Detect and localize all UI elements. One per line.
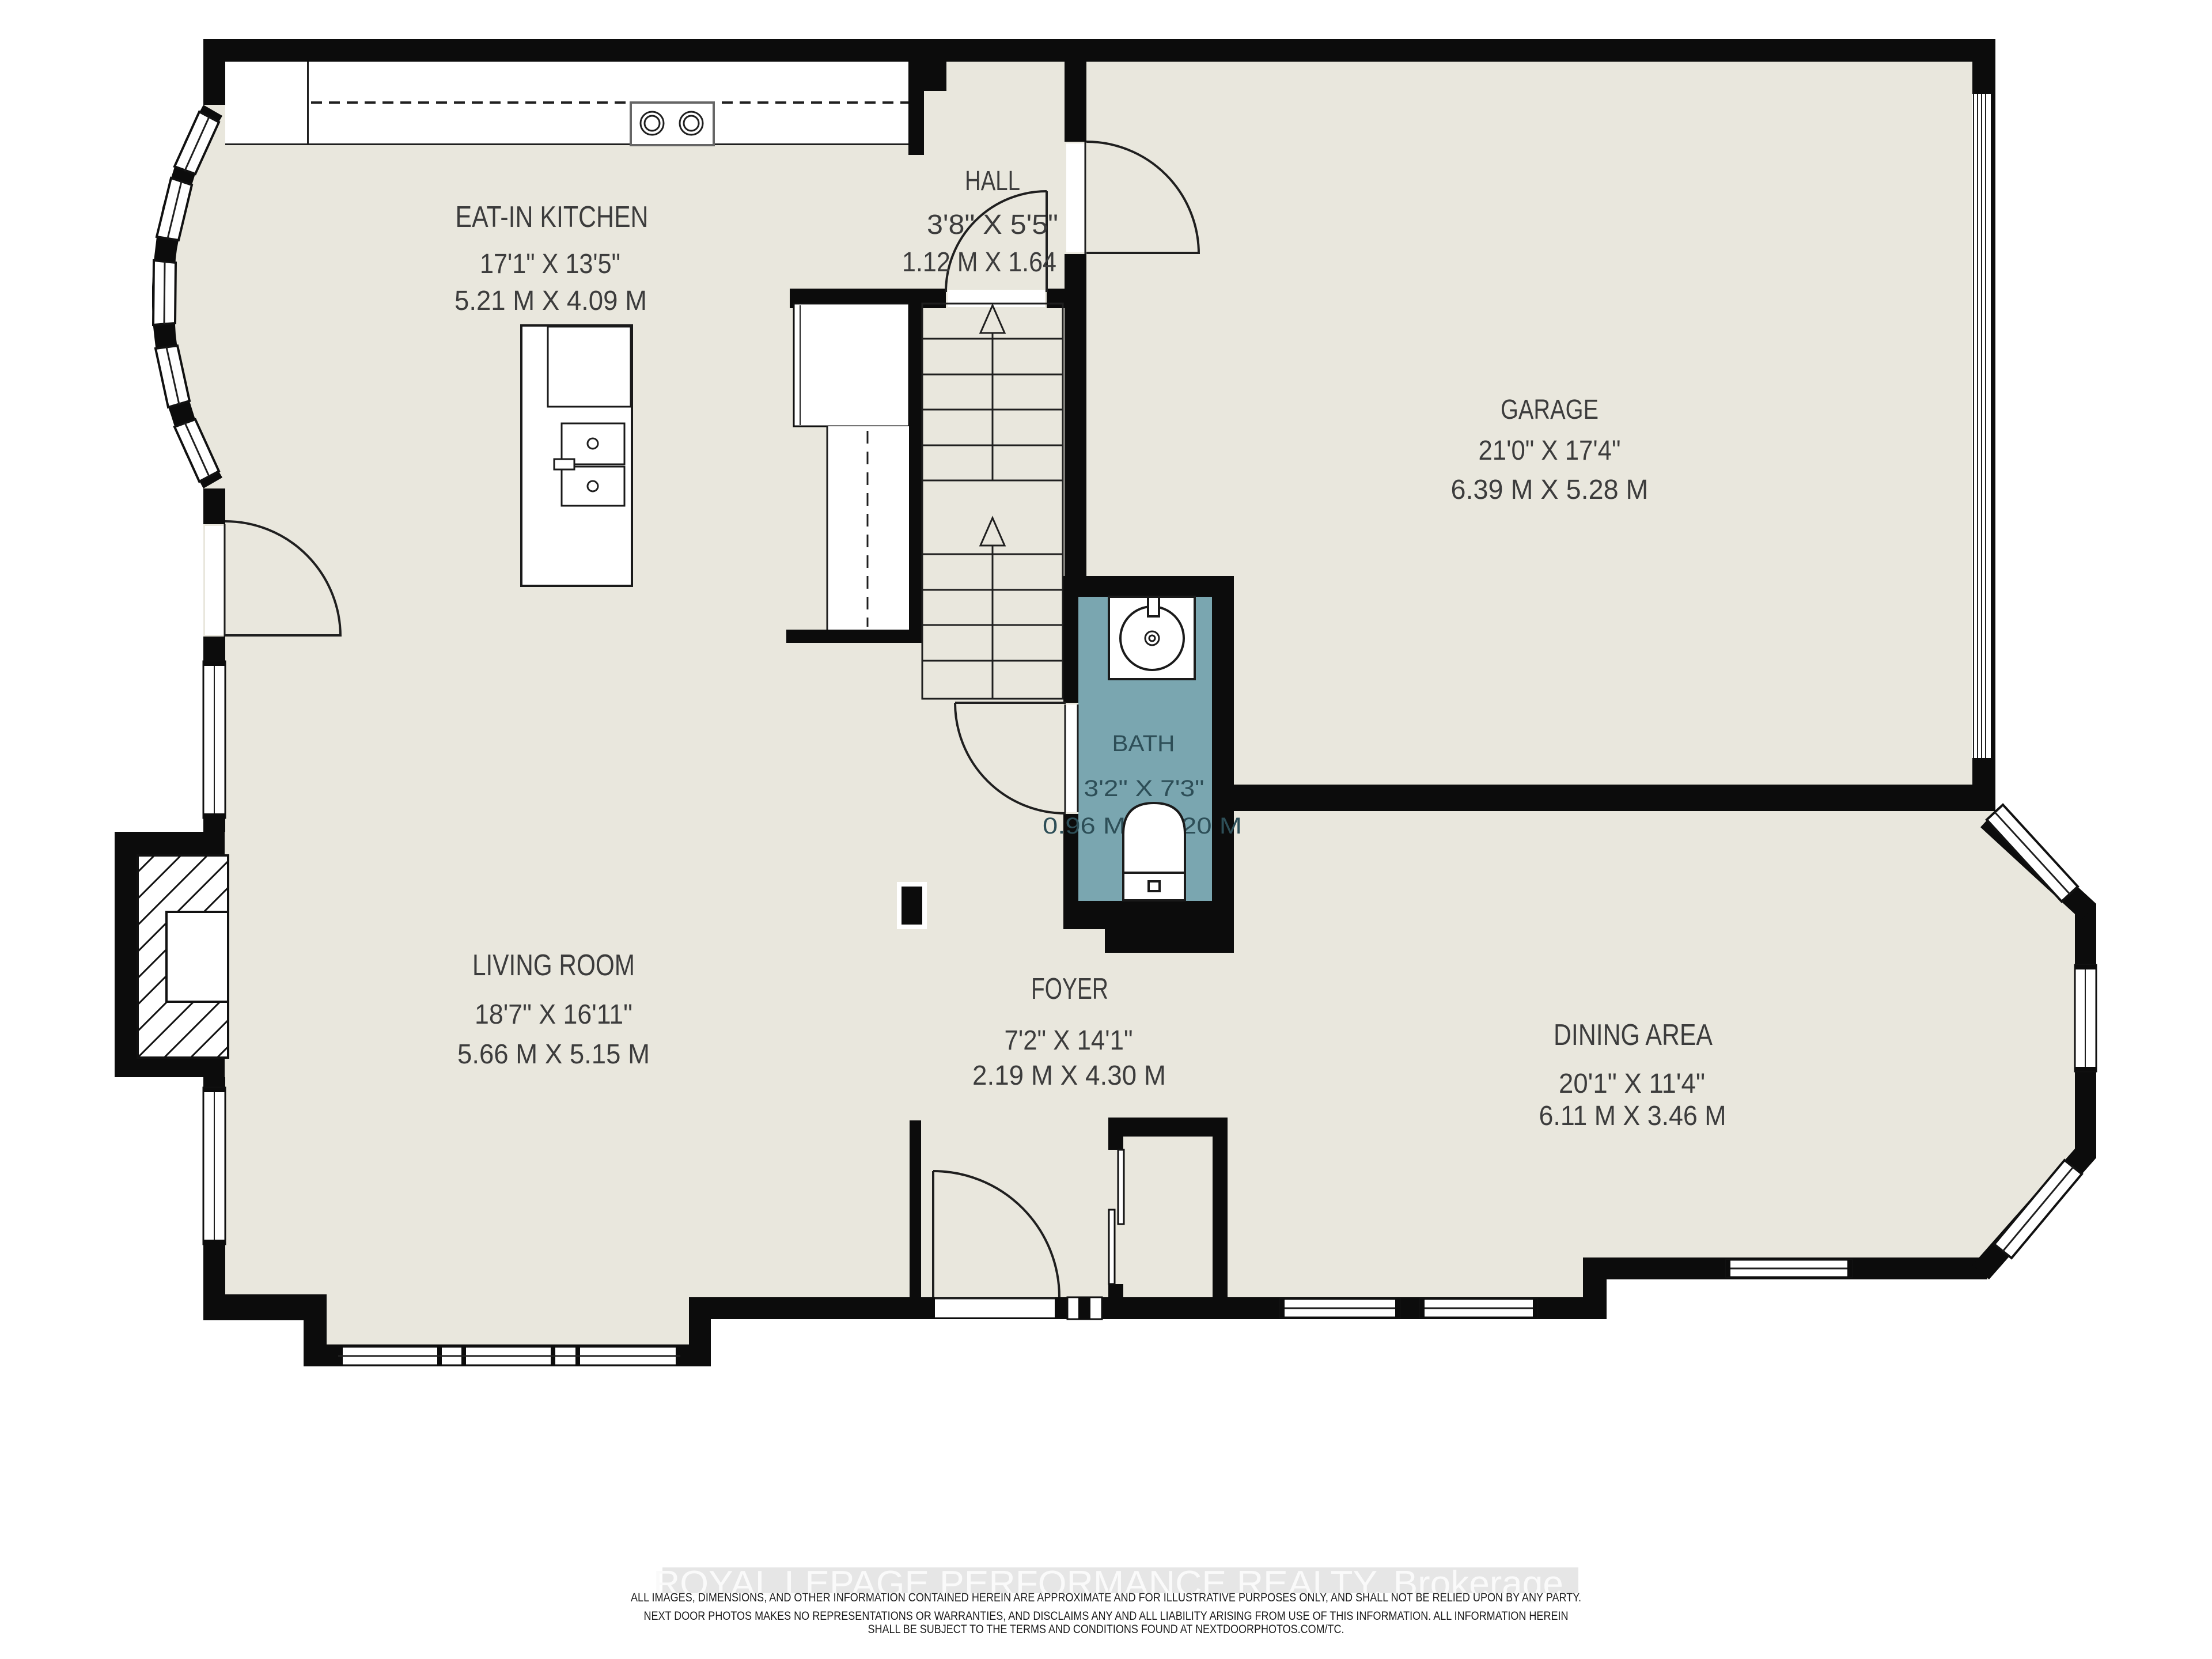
svg-text:3'2" X 7'3": 3'2" X 7'3" bbox=[1084, 776, 1205, 801]
svg-text:7'2" X 14'1": 7'2" X 14'1" bbox=[1005, 1025, 1133, 1056]
svg-text:3'8" X 5'5": 3'8" X 5'5" bbox=[927, 210, 1058, 240]
svg-text:2.19 M X 4.30 M: 2.19 M X 4.30 M bbox=[972, 1060, 1166, 1091]
svg-text:20'1" X 11'4": 20'1" X 11'4" bbox=[1559, 1069, 1705, 1099]
svg-text:LIVING ROOM: LIVING ROOM bbox=[472, 949, 635, 982]
svg-text:NEXT DOOR PHOTOS MAKES NO REPR: NEXT DOOR PHOTOS MAKES NO REPRESENTATION… bbox=[644, 1609, 1569, 1623]
svg-text:ALL IMAGES, DIMENSIONS, AND OT: ALL IMAGES, DIMENSIONS, AND OTHER INFORM… bbox=[631, 1590, 1581, 1604]
svg-text:5.21 M X 4.09 M: 5.21 M X 4.09 M bbox=[454, 286, 647, 316]
svg-text:FOYER: FOYER bbox=[1031, 972, 1108, 1006]
svg-text:6.39 M X 5.28 M: 6.39 M X 5.28 M bbox=[1451, 475, 1649, 505]
svg-text:5.66 M X 5.15 M: 5.66 M X 5.15 M bbox=[457, 1039, 650, 1070]
svg-text:17'1" X 13'5": 17'1" X 13'5" bbox=[480, 249, 620, 279]
svg-text:EAT-IN KITCHEN: EAT-IN KITCHEN bbox=[456, 200, 649, 234]
svg-text:SHALL BE SUBJECT TO THE TERMS: SHALL BE SUBJECT TO THE TERMS AND CONDIT… bbox=[868, 1622, 1344, 1636]
svg-text:1.12 M X 1.64: 1.12 M X 1.64 bbox=[902, 247, 1056, 278]
svg-text:BATH: BATH bbox=[1112, 731, 1175, 756]
svg-text:DINING AREA: DINING AREA bbox=[1554, 1018, 1713, 1052]
svg-text:HALL: HALL bbox=[965, 166, 1020, 196]
svg-text:GARAGE: GARAGE bbox=[1501, 395, 1599, 425]
svg-text:6.11 M X 3.46 M: 6.11 M X 3.46 M bbox=[1539, 1101, 1726, 1131]
svg-text:21'0" X 17'4": 21'0" X 17'4" bbox=[1479, 435, 1621, 466]
svg-text:18'7" X 16'11": 18'7" X 16'11" bbox=[475, 999, 632, 1030]
